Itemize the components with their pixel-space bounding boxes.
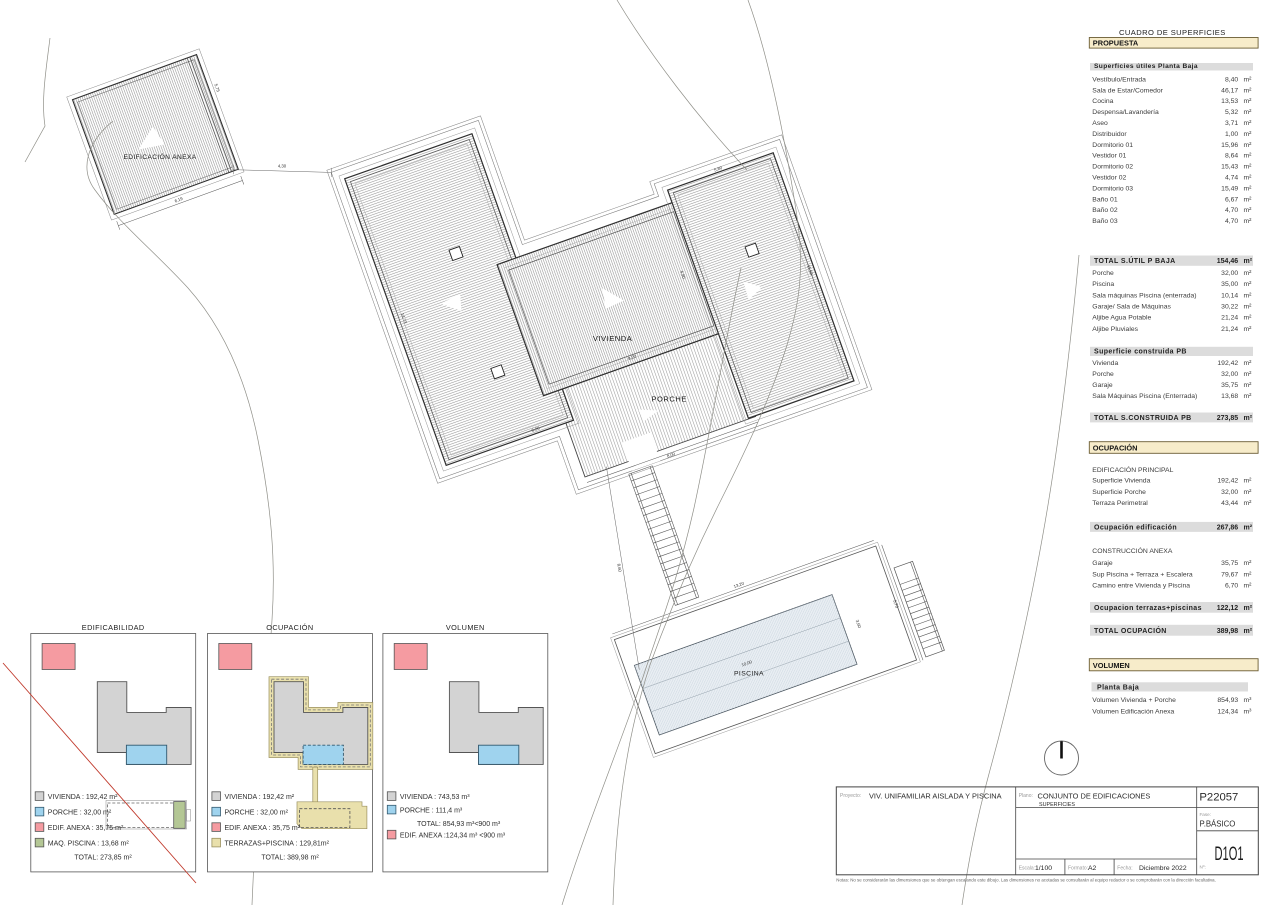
svg-text:Vestíbulo/Entrada: Vestíbulo/Entrada [1092,76,1146,83]
svg-text:TOTAL: 854,93 m³<900 m³: TOTAL: 854,93 m³<900 m³ [417,821,501,828]
svg-text:EDIFICABILIDAD: EDIFICABILIDAD [82,623,145,632]
svg-text:30,22: 30,22 [1221,304,1238,311]
svg-text:m²: m² [1244,583,1253,590]
svg-text:EDIF. ANEXA : 35,75 m²: EDIF. ANEXA : 35,75 m² [48,825,124,832]
svg-text:m²: m² [1244,175,1253,182]
svg-text:Dormitorio 03: Dormitorio 03 [1092,185,1133,192]
svg-text:15,43: 15,43 [1221,164,1238,171]
svg-text:m²: m² [1244,292,1253,299]
svg-text:Sala Máquinas Piscina (Enterra: Sala Máquinas Piscina (Enterrada) [1092,393,1197,400]
svg-text:4,74: 4,74 [1225,175,1238,182]
svg-text:15,96: 15,96 [1221,142,1238,149]
svg-text:TOTAL OCUPACIÓN: TOTAL OCUPACIÓN [1094,626,1167,635]
svg-text:m²: m² [1244,270,1253,277]
svg-text:Plano:: Plano: [1019,793,1033,799]
svg-text:35,75: 35,75 [1221,382,1238,389]
svg-text:TOTAL: 389,98 m²: TOTAL: 389,98 m² [261,855,319,862]
svg-text:13,68: 13,68 [1221,393,1238,400]
svg-text:Volumen Vivienda + Porche: Volumen Vivienda + Porche [1092,697,1176,704]
svg-text:Terraza Perimetral: Terraza Perimetral [1092,500,1148,507]
svg-text:79,67: 79,67 [1221,571,1238,578]
svg-text:Despensa/Lavandería: Despensa/Lavandería [1092,109,1159,116]
svg-text:VOLUMEN: VOLUMEN [1093,661,1130,670]
svg-text:m²: m² [1244,415,1253,422]
svg-text:m²: m² [1244,478,1253,485]
svg-text:Dormitorio 01: Dormitorio 01 [1092,142,1133,149]
svg-text:m²: m² [1244,315,1253,322]
svg-text:854,93: 854,93 [1217,697,1238,704]
svg-text:Garaje: Garaje [1092,382,1113,389]
svg-text:21,24: 21,24 [1221,315,1238,322]
svg-text:m²: m² [1244,360,1253,367]
svg-text:192,42: 192,42 [1217,360,1238,367]
svg-text:Porche: Porche [1092,371,1114,378]
svg-text:1,00: 1,00 [1225,131,1238,138]
svg-text:Superficies útiles Planta Baja: Superficies útiles Planta Baja [1094,63,1198,70]
svg-text:EDIFICACIÓN PRINCIPAL: EDIFICACIÓN PRINCIPAL [1092,465,1173,474]
svg-text:m²: m² [1244,560,1253,567]
svg-text:Proyecto:: Proyecto: [840,793,861,799]
svg-text:Superficie Vivienda: Superficie Vivienda [1092,478,1150,485]
svg-text:VIVIENDA : 192,42 m²: VIVIENDA : 192,42 m² [225,794,295,801]
svg-text:Sup Piscina + Terraza + Escale: Sup Piscina + Terraza + Escalera [1092,571,1193,578]
svg-text:TOTAL: 273,85 m²: TOTAL: 273,85 m² [74,855,132,862]
svg-text:Cocina: Cocina [1092,98,1113,105]
svg-text:PROPUESTA: PROPUESTA [1093,39,1139,48]
svg-text:SUPERFICIES: SUPERFICIES [1039,802,1075,808]
svg-text:EDIFICACIÓN ANEXA: EDIFICACIÓN ANEXA [123,152,196,161]
svg-text:32,00: 32,00 [1221,371,1238,378]
svg-text:6,67: 6,67 [1225,196,1238,203]
svg-text:Vivienda: Vivienda [1092,360,1118,367]
svg-text:Aljibe Agua Potable: Aljibe Agua Potable [1092,315,1151,322]
svg-text:PORCHE : 32,00 m²: PORCHE : 32,00 m² [225,810,289,817]
svg-text:m²: m² [1244,524,1253,531]
svg-text:192,42: 192,42 [1217,478,1238,485]
svg-text:4,70: 4,70 [1225,207,1238,214]
svg-text:A2: A2 [1088,865,1097,872]
svg-text:PISCINA: PISCINA [734,671,764,678]
svg-text:P.BÁSICO: P.BÁSICO [1200,819,1236,828]
svg-text:4,70: 4,70 [1225,218,1238,225]
svg-text:3,71: 3,71 [1225,120,1238,127]
svg-text:m²: m² [1244,164,1253,171]
svg-text:32,00: 32,00 [1221,489,1238,496]
svg-text:Baño 02: Baño 02 [1092,207,1118,214]
svg-text:6,70: 6,70 [1225,583,1238,590]
svg-text:m²: m² [1244,131,1253,138]
svg-text:Planta Baja: Planta Baja [1097,684,1139,691]
svg-text:32,00: 32,00 [1221,270,1238,277]
svg-text:VIV. UNIFAMILIAR AISLADA Y PIS: VIV. UNIFAMILIAR AISLADA Y PISCINA [869,792,1002,801]
svg-text:m³: m³ [1244,697,1253,704]
svg-text:m²: m² [1244,142,1253,149]
svg-text:Ocupacion terrazas+piscinas: Ocupacion terrazas+piscinas [1094,605,1202,612]
svg-text:PORCHE : 32,00 m²: PORCHE : 32,00 m² [48,810,112,817]
svg-text:Fase:: Fase: [1200,812,1212,817]
svg-text:Camino entre Vivienda y Piscin: Camino entre Vivienda y Piscina [1092,583,1190,590]
svg-text:m²: m² [1244,120,1253,127]
svg-text:VIVIENDA: VIVIENDA [593,334,633,343]
svg-text:Diciembre 2022: Diciembre 2022 [1139,865,1187,872]
svg-text:EDIF. ANEXA : 35,75 m²: EDIF. ANEXA : 35,75 m² [225,825,301,832]
svg-text:124,34: 124,34 [1217,708,1238,715]
svg-text:VOLUMEN: VOLUMEN [446,623,485,632]
svg-text:m²: m² [1244,207,1253,214]
svg-text:8,64: 8,64 [1225,153,1238,160]
svg-text:m²: m² [1244,258,1253,265]
svg-text:MAQ. PISCINA : 13,68 m²: MAQ. PISCINA : 13,68 m² [48,841,130,848]
svg-text:m²: m² [1244,87,1253,94]
svg-text:154,46: 154,46 [1217,258,1239,265]
svg-text:1/100: 1/100 [1035,865,1052,872]
svg-text:8,40: 8,40 [1225,76,1238,83]
svg-text:Escala:: Escala: [1019,866,1035,872]
svg-text:EDIF. ANEXA :124,34 m³ <900 m³: EDIF. ANEXA :124,34 m³ <900 m³ [400,833,506,840]
svg-text:15,49: 15,49 [1221,185,1238,192]
svg-text:CONJUNTO DE EDIFICACIONES: CONJUNTO DE EDIFICACIONES [1038,792,1151,801]
svg-text:VIVIENDA : 192,42 m²: VIVIENDA : 192,42 m² [48,794,118,801]
svg-text:Distribuidor: Distribuidor [1092,131,1127,138]
svg-text:Sala máquinas Piscina (enterra: Sala máquinas Piscina (enterrada) [1092,292,1196,299]
svg-text:OCUPACIÓN: OCUPACIÓN [1093,444,1138,453]
svg-text:m²: m² [1244,196,1253,203]
svg-text:Superficie construida PB: Superficie construida PB [1094,348,1187,355]
svg-text:m²: m² [1244,153,1253,160]
svg-text:m²: m² [1244,326,1253,333]
svg-text:Ocupación edificación: Ocupación edificación [1094,524,1177,531]
svg-text:13,53: 13,53 [1221,98,1238,105]
svg-text:TERRAZAS+PISCINA : 129,81m²: TERRAZAS+PISCINA : 129,81m² [225,841,330,848]
svg-text:m²: m² [1244,371,1253,378]
svg-text:Piscina: Piscina [1092,281,1114,288]
svg-text:273,85: 273,85 [1217,415,1239,422]
svg-text:m²: m² [1244,393,1253,400]
svg-text:Notas: No se considerarán las: Notas: No se considerarán las dimensione… [836,878,1216,883]
svg-text:Fecha:: Fecha: [1117,866,1132,872]
svg-text:Vestidor 02: Vestidor 02 [1092,175,1126,182]
svg-text:Superficie Porche: Superficie Porche [1092,489,1146,496]
svg-text:Vestidor 01: Vestidor 01 [1092,153,1126,160]
svg-text:5,75: 5,75 [213,83,221,93]
svg-text:P22057: P22057 [1199,791,1238,803]
svg-text:m²: m² [1244,98,1253,105]
svg-text:Baño 03: Baño 03 [1092,218,1118,225]
svg-text:m²: m² [1244,185,1253,192]
svg-text:389,98: 389,98 [1217,628,1239,635]
svg-text:m²: m² [1244,304,1253,311]
svg-text:m²: m² [1244,605,1253,612]
svg-text:21,24: 21,24 [1221,326,1238,333]
svg-text:TOTAL S.CONSTRUIDA PB: TOTAL S.CONSTRUIDA PB [1094,415,1192,422]
svg-text:CONSTRUCCIÓN ANEXA: CONSTRUCCIÓN ANEXA [1092,546,1173,555]
svg-text:PORCHE : 111,4 m³: PORCHE : 111,4 m³ [400,808,463,815]
svg-text:m²: m² [1244,500,1253,507]
svg-text:10,14: 10,14 [1221,292,1238,299]
svg-text:Aljibe Pluviales: Aljibe Pluviales [1092,326,1138,333]
svg-text:35,75: 35,75 [1221,560,1238,567]
svg-text:4,30: 4,30 [278,164,287,169]
svg-text:13,20: 13,20 [733,580,745,589]
svg-text:Volumen Edificación Anexa: Volumen Edificación Anexa [1092,708,1174,715]
svg-text:267,86: 267,86 [1217,524,1239,531]
svg-text:Baño 01: Baño 01 [1092,196,1118,203]
svg-text:m²: m² [1244,76,1253,83]
svg-text:Garaje: Garaje [1092,560,1113,567]
svg-text:m²: m² [1244,281,1253,288]
svg-text:Nº:: Nº: [1200,865,1206,870]
svg-text:35,00: 35,00 [1221,281,1238,288]
svg-text:43,44: 43,44 [1221,500,1238,507]
svg-text:m³: m³ [1244,708,1253,715]
svg-text:m²: m² [1244,489,1253,496]
svg-text:Sala de Estar/Comedor: Sala de Estar/Comedor [1092,87,1163,94]
svg-text:VIVIENDA : 743,53 m³: VIVIENDA : 743,53 m³ [400,794,470,801]
svg-text:8,00: 8,00 [666,451,676,459]
svg-text:46,17: 46,17 [1221,87,1238,94]
svg-text:D1O1: D1O1 [1215,844,1244,865]
svg-text:Formato:: Formato: [1068,866,1088,872]
svg-text:122,12: 122,12 [1217,605,1239,612]
svg-text:Aseo: Aseo [1092,120,1108,127]
svg-text:m²: m² [1244,218,1253,225]
svg-text:m²: m² [1244,628,1253,635]
svg-text:Garaje/ Sala de Máquinas: Garaje/ Sala de Máquinas [1092,304,1171,311]
svg-text:CUADRO DE SUPERFICIES: CUADRO DE SUPERFICIES [1119,28,1226,37]
svg-text:m²: m² [1244,571,1253,578]
svg-text:OCUPACIÓN: OCUPACIÓN [266,623,313,632]
svg-text:m²: m² [1244,109,1253,116]
svg-text:Porche: Porche [1092,270,1114,277]
svg-text:PORCHE: PORCHE [651,394,687,403]
svg-text:8,60: 8,60 [616,563,622,573]
svg-text:m²: m² [1244,382,1253,389]
svg-text:5,32: 5,32 [1225,109,1238,116]
svg-text:Dormitorio 02: Dormitorio 02 [1092,164,1133,171]
svg-text:TOTAL S.ÚTIL P BAJA: TOTAL S.ÚTIL P BAJA [1094,256,1176,265]
